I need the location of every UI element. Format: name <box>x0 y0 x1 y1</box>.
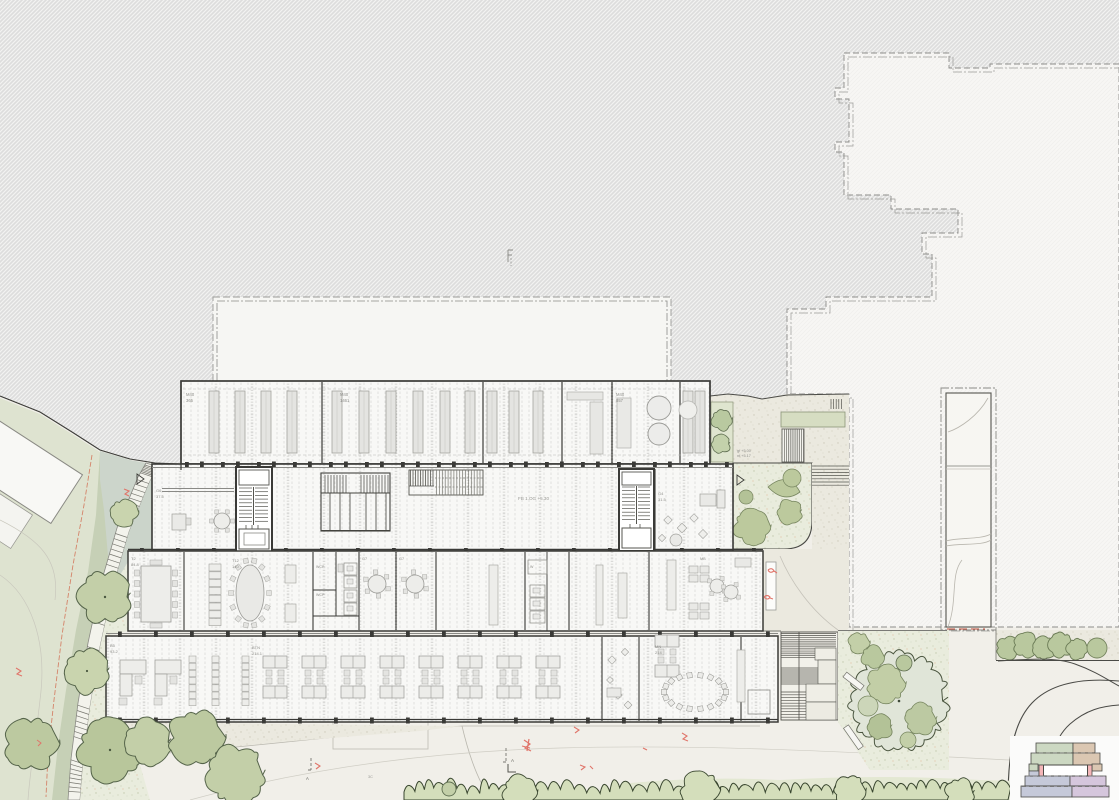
svg-text:M40: M40 <box>616 392 625 397</box>
svg-text:3C: 3C <box>368 775 373 779</box>
svg-text:31.5: 31.5 <box>658 497 667 502</box>
svg-text:G4: G4 <box>658 491 664 496</box>
svg-text:MB: MB <box>700 557 706 561</box>
svg-text:M40: M40 <box>186 392 195 397</box>
svg-text:A: A <box>306 776 309 781</box>
svg-text:gf +5.00: gf +5.00 <box>737 449 751 453</box>
svg-text:37.5: 37.5 <box>156 494 165 499</box>
svg-text:T2: T2 <box>131 556 136 561</box>
svg-text:214.1: 214.1 <box>252 651 263 656</box>
svg-text:1461: 1461 <box>340 398 350 403</box>
svg-text:G7: G7 <box>362 557 367 561</box>
svg-text:nf +5.17: nf +5.17 <box>737 454 751 458</box>
svg-text:214: 214 <box>655 650 662 655</box>
svg-text:140: 140 <box>232 564 239 569</box>
svg-text:BTN: BTN <box>252 645 260 650</box>
svg-text:M40: M40 <box>340 392 349 397</box>
svg-text:WCP: WCP <box>316 593 325 597</box>
svg-text:93.2: 93.2 <box>110 649 119 654</box>
svg-text:A: A <box>511 758 514 763</box>
svg-text:W: W <box>530 565 534 569</box>
svg-text:MN: MN <box>655 644 661 649</box>
svg-text:B5: B5 <box>110 643 116 648</box>
svg-text:84.8: 84.8 <box>131 562 140 567</box>
svg-text:FB 1.OG +5.30: FB 1.OG +5.30 <box>518 496 549 501</box>
svg-text:WCP: WCP <box>316 565 325 569</box>
svg-text:G6: G6 <box>156 488 162 493</box>
svg-text:857: 857 <box>616 398 624 403</box>
svg-text:T12: T12 <box>232 558 240 563</box>
svg-text:365: 365 <box>186 398 194 403</box>
svg-text:G7: G7 <box>399 557 404 561</box>
